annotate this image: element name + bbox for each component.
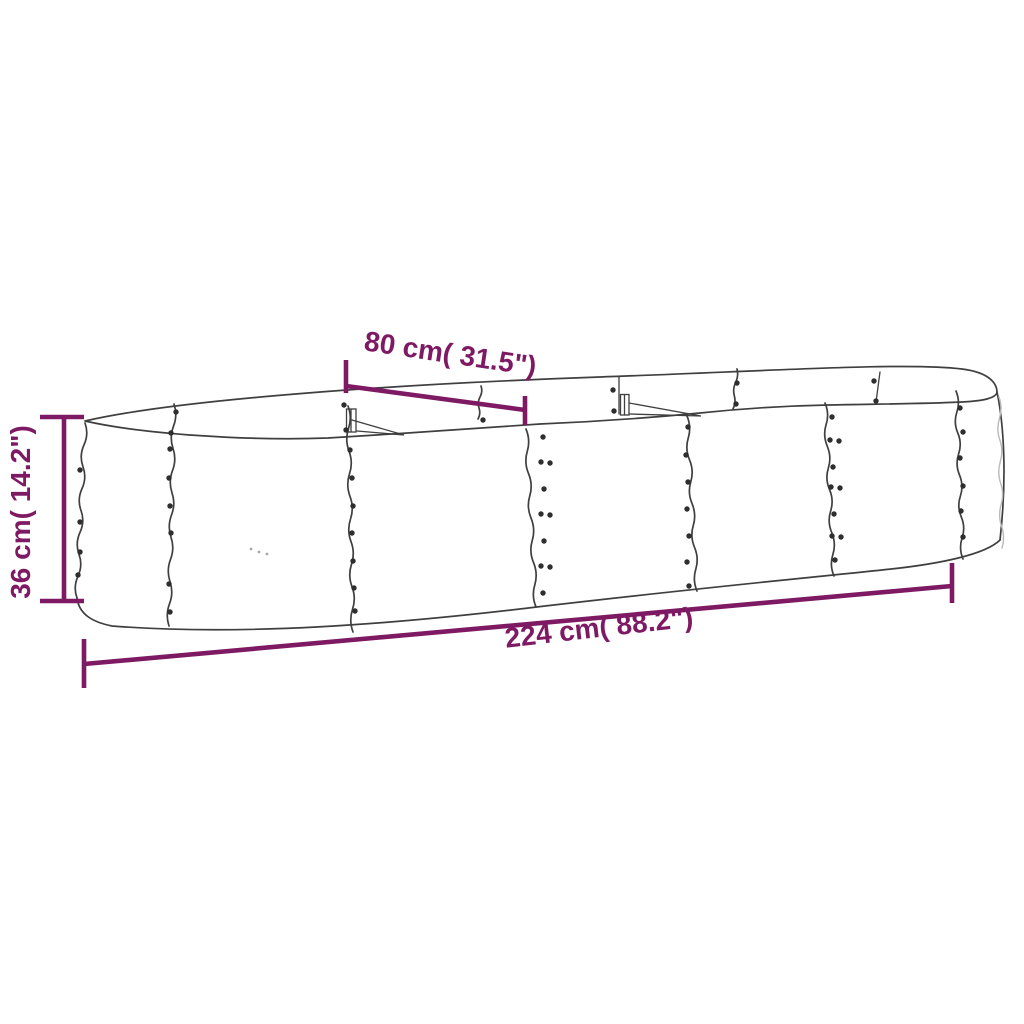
rivet-dot: [167, 503, 172, 508]
seam-line: [687, 416, 697, 591]
speckle-dot: [266, 553, 269, 556]
rivet-dot: [168, 430, 173, 435]
speckle-dot: [250, 548, 253, 551]
rivet-dot: [167, 609, 172, 614]
dimension-label-height: 36 cm( 14.2"): [5, 425, 36, 599]
rivet-dot: [538, 563, 543, 568]
diagram-canvas: 36 cm( 14.2") 80 cm( 31.5") 224 cm( 88.2…: [0, 0, 1024, 1024]
surface-speckles: [250, 548, 269, 556]
seam-line: [955, 391, 963, 559]
dimension-label-width: 80 cm( 31.5"): [362, 325, 538, 381]
rivet-dot: [957, 405, 962, 410]
rivet-dot: [540, 434, 545, 439]
planter-bottom-edge: [77, 540, 1000, 630]
speckle-dot: [258, 551, 261, 554]
rivet-dot: [958, 508, 963, 513]
rivet-dot: [347, 447, 352, 452]
rivet-dot: [547, 460, 552, 465]
seam-line: [75, 423, 87, 598]
rivet-dot: [685, 479, 690, 484]
rivet-dot: [957, 455, 962, 460]
rivet-dot: [173, 409, 178, 414]
rivet-dot: [829, 414, 834, 419]
rivet-dot: [832, 557, 837, 562]
rivet-dot: [351, 585, 356, 590]
rivet-dot: [75, 572, 80, 577]
rivet-dot: [541, 538, 546, 543]
rivet-dot: [960, 429, 965, 434]
rivet-dot: [166, 581, 171, 586]
rivet-dot: [350, 503, 355, 508]
rivet-dot: [733, 401, 738, 406]
rivet-dot: [540, 590, 545, 595]
rivet-dot: [827, 437, 832, 442]
rivet-dot: [684, 506, 689, 511]
rivet-dot: [547, 564, 552, 569]
dimension-length-224cm: 224 cm( 88.2"): [84, 563, 952, 688]
rivet-dot: [836, 438, 841, 443]
rivet-dot: [831, 511, 836, 516]
rivet-dot: [683, 452, 688, 457]
rivet-dot: [685, 424, 690, 429]
dimension-height-36cm: 36 cm( 14.2"): [5, 417, 84, 601]
rivet-dot: [343, 427, 348, 432]
rivet-dot: [77, 549, 82, 554]
rivet-dot: [538, 511, 543, 516]
seam-line: [167, 404, 176, 626]
rivet-dot: [960, 534, 965, 539]
rivet-dot: [734, 380, 739, 385]
rivet-dot: [166, 475, 171, 480]
rivet-dot: [837, 485, 842, 490]
rivet-dot: [77, 519, 82, 524]
rivet-dot: [610, 387, 615, 392]
rivet-dot: [480, 417, 485, 422]
rivet-dot: [168, 530, 173, 535]
rivet-dot: [871, 378, 876, 383]
rivet-dot: [686, 533, 691, 538]
rivet-dot: [538, 459, 543, 464]
seam-line: [825, 403, 835, 576]
seam-line: [526, 429, 536, 607]
rivet-dot: [829, 533, 834, 538]
rivet-dot: [873, 398, 878, 403]
seam-line: [347, 406, 355, 632]
rivet-dot: [547, 512, 552, 517]
rivet-dot: [352, 608, 357, 613]
rivet-dot: [341, 402, 346, 407]
garden-bed-dimension-diagram: 36 cm( 14.2") 80 cm( 31.5") 224 cm( 88.2…: [0, 0, 1024, 1024]
rivet-dot: [167, 446, 172, 451]
dimension-label-length: 224 cm( 88.2"): [503, 601, 694, 653]
rivet-dot: [77, 467, 82, 472]
rivet-dot: [828, 484, 833, 489]
rivet-dot: [684, 559, 689, 564]
rivet-dot: [686, 583, 691, 588]
rivet-dot: [830, 464, 835, 469]
planter-rim: [85, 366, 997, 438]
rivet-dot: [349, 475, 354, 480]
rivet-dot: [960, 483, 965, 488]
rivet-dot: [349, 530, 354, 535]
rivet-dot: [541, 486, 546, 491]
rivet-dot: [350, 558, 355, 563]
rivet-dot: [611, 408, 616, 413]
rivet-dot: [838, 534, 843, 539]
